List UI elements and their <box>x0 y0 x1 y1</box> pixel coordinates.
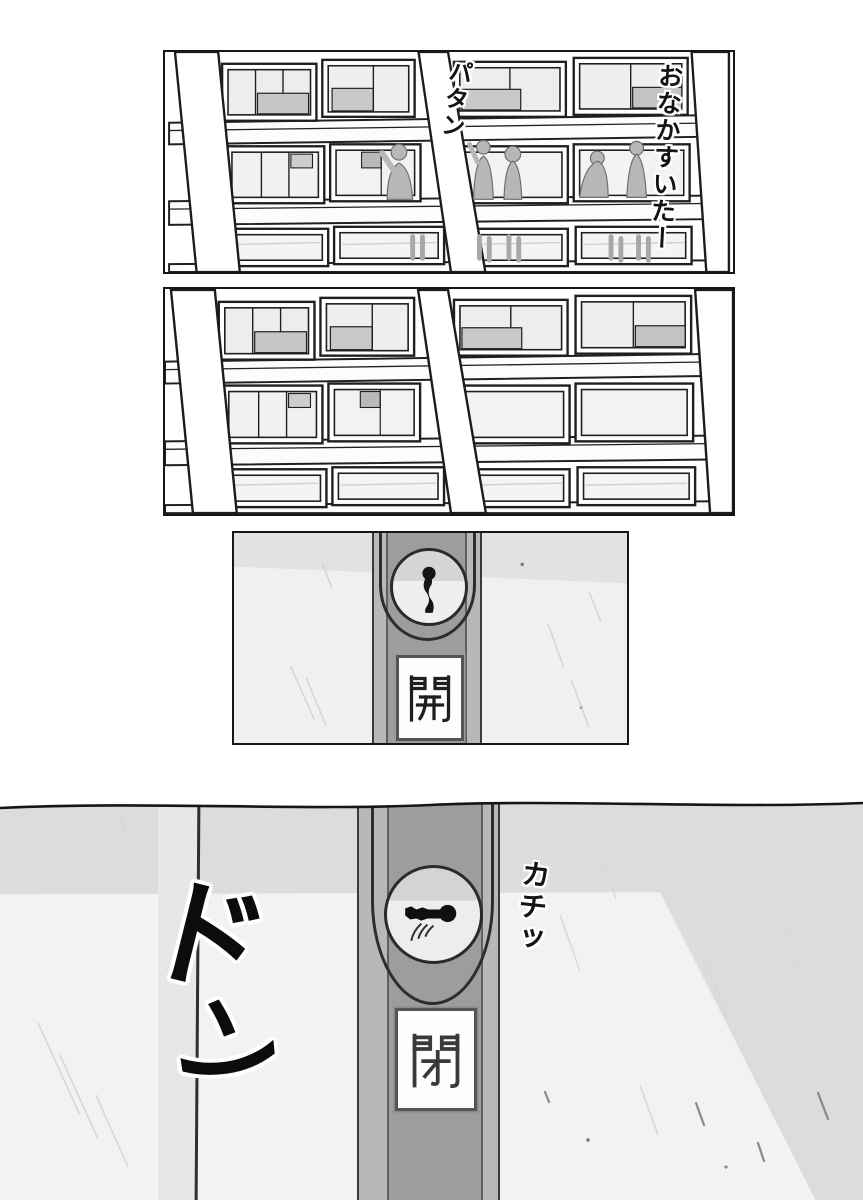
turn-motion-lines <box>411 924 433 941</box>
sign-closed: 閉 <box>395 1008 477 1111</box>
panel-lock-closed: 閉 カチッ ド ン <box>0 795 863 1200</box>
lock-cylinder <box>390 548 468 626</box>
kanji-closed-icon <box>407 1022 465 1098</box>
panel-school-exterior-empty <box>163 287 735 516</box>
school-building-drawing-empty <box>165 289 733 514</box>
keyhole-vertical-icon <box>393 551 465 623</box>
sign-open: 開 <box>396 655 464 741</box>
panel-top-edge <box>0 795 863 817</box>
lock-cylinder-wide <box>384 865 483 964</box>
panel-lock-open: 開 <box>232 531 629 745</box>
manga-page: パタン おなかすいたー 開 <box>0 0 863 1200</box>
kanji-open-icon <box>405 666 455 730</box>
keyhole-turned-icon <box>387 868 480 961</box>
panel-school-exterior: パタン おなかすいたー <box>163 50 735 274</box>
